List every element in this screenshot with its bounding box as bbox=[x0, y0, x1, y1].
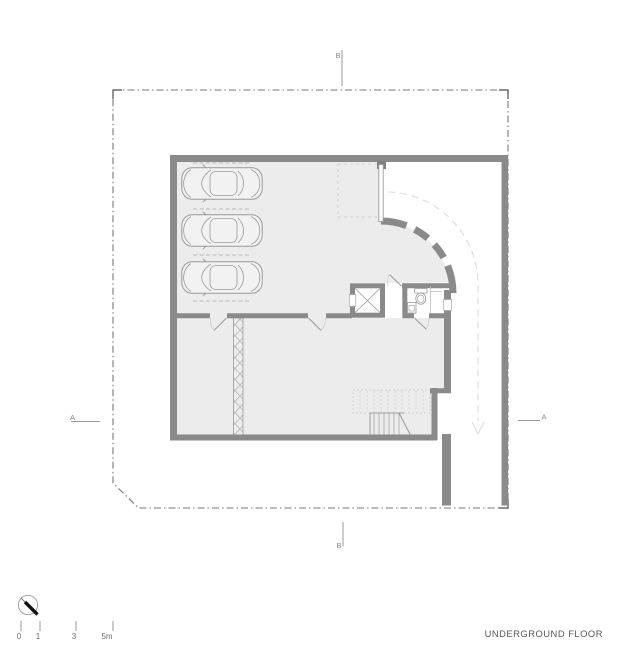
section-marker-a-left: A bbox=[70, 413, 100, 422]
floor-plan-drawing: B B A A 0 1 3 5m UNDERGROUND FLOOR bbox=[0, 0, 620, 656]
toilet-icon bbox=[415, 289, 428, 305]
section-marker-b-top: B bbox=[335, 50, 342, 86]
sink-icon bbox=[408, 303, 417, 314]
north-arrow-icon bbox=[18, 595, 37, 614]
svg-text:B: B bbox=[335, 51, 340, 60]
car-2 bbox=[182, 212, 262, 249]
car-3 bbox=[182, 259, 262, 296]
scale-bar-ticks bbox=[21, 621, 113, 631]
plan-title: UNDERGROUND FLOOR bbox=[485, 628, 603, 639]
elevator-door-opening bbox=[349, 295, 356, 307]
section-marker-b-bottom: B bbox=[336, 522, 343, 550]
bathroom-window-opening bbox=[444, 300, 452, 311]
wall-ramp-edge-thin bbox=[379, 165, 383, 222]
hatched-wall bbox=[234, 318, 244, 435]
svg-text:B: B bbox=[336, 541, 341, 550]
section-marker-a-right: A bbox=[518, 413, 547, 422]
scale-label-0: 0 bbox=[17, 632, 22, 641]
svg-text:A: A bbox=[542, 413, 547, 422]
scale-label-1: 1 bbox=[36, 632, 41, 641]
driveway-arrow-icon bbox=[472, 422, 484, 434]
boundary-corner-mark bbox=[113, 90, 122, 99]
scale-bar: 0 1 3 5m bbox=[17, 621, 113, 641]
scale-label-5m: 5m bbox=[101, 632, 112, 641]
svg-text:A: A bbox=[70, 413, 75, 422]
boundary-corner-mark bbox=[499, 90, 508, 99]
car-1 bbox=[182, 165, 262, 202]
scale-label-3: 3 bbox=[72, 632, 77, 641]
floor-plan-canvas: B B A A 0 1 3 5m UNDERGROUND FLOOR bbox=[0, 0, 620, 656]
